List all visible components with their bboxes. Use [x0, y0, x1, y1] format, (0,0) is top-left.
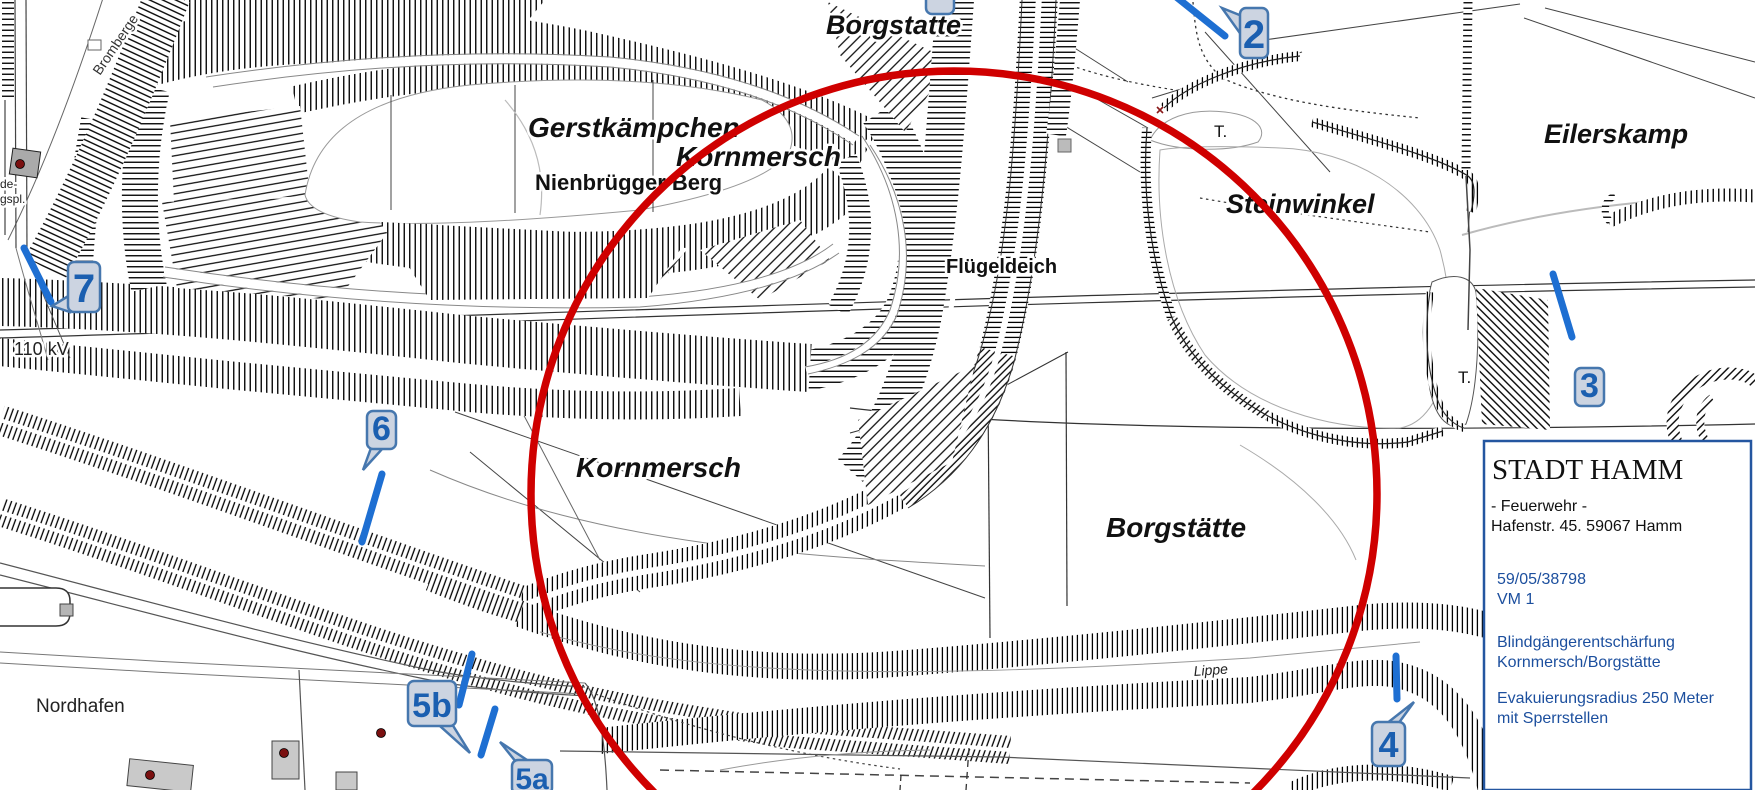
svg-text:Nordhafen: Nordhafen [36, 696, 125, 717]
svg-text:2: 2 [1243, 13, 1265, 57]
svg-text:59/05/38798: 59/05/38798 [1497, 571, 1586, 588]
svg-text:Gerstkämpchen: Gerstkämpchen [528, 112, 740, 143]
svg-text:Evakuierungsradius 250 Meter: Evakuierungsradius 250 Meter [1497, 690, 1715, 707]
svg-text:T.: T. [1214, 122, 1227, 141]
svg-text:Kornmersch: Kornmersch [576, 452, 741, 483]
svg-text:Kornmersch/Borgstätte: Kornmersch/Borgstätte [1497, 654, 1661, 671]
svg-text:7: 7 [73, 267, 95, 311]
svg-text:Nienbrügger Berg: Nienbrügger Berg [535, 170, 722, 195]
svg-text:4: 4 [1378, 724, 1398, 765]
svg-text:Lippe: Lippe [1193, 661, 1229, 679]
svg-text:T.: T. [1458, 368, 1471, 387]
svg-text:STADT HAMM: STADT HAMM [1492, 454, 1683, 486]
svg-text:mit Sperrstellen: mit Sperrstellen [1497, 710, 1608, 727]
svg-text:Hafenstr. 45. 59067 Hamm: Hafenstr. 45. 59067 Hamm [1491, 518, 1682, 535]
svg-text:de-: de- [0, 177, 17, 191]
svg-text:Blindgängerentschärfung: Blindgängerentschärfung [1497, 634, 1675, 651]
svg-text:Eilerskamp: Eilerskamp [1544, 119, 1688, 149]
svg-text:VM 1: VM 1 [1497, 591, 1534, 608]
svg-text:6: 6 [372, 410, 391, 448]
svg-text:Flügeldeich: Flügeldeich [946, 256, 1057, 278]
svg-text:Borgstätte: Borgstätte [1106, 512, 1246, 543]
svg-text:gspl.: gspl. [0, 192, 25, 206]
svg-text:110 kV: 110 kV [14, 339, 69, 359]
svg-text:5a: 5a [515, 763, 549, 790]
svg-text:5b: 5b [412, 687, 452, 725]
svg-text:- Feuerwehr -: - Feuerwehr - [1491, 498, 1587, 515]
svg-text:3: 3 [1580, 367, 1599, 405]
